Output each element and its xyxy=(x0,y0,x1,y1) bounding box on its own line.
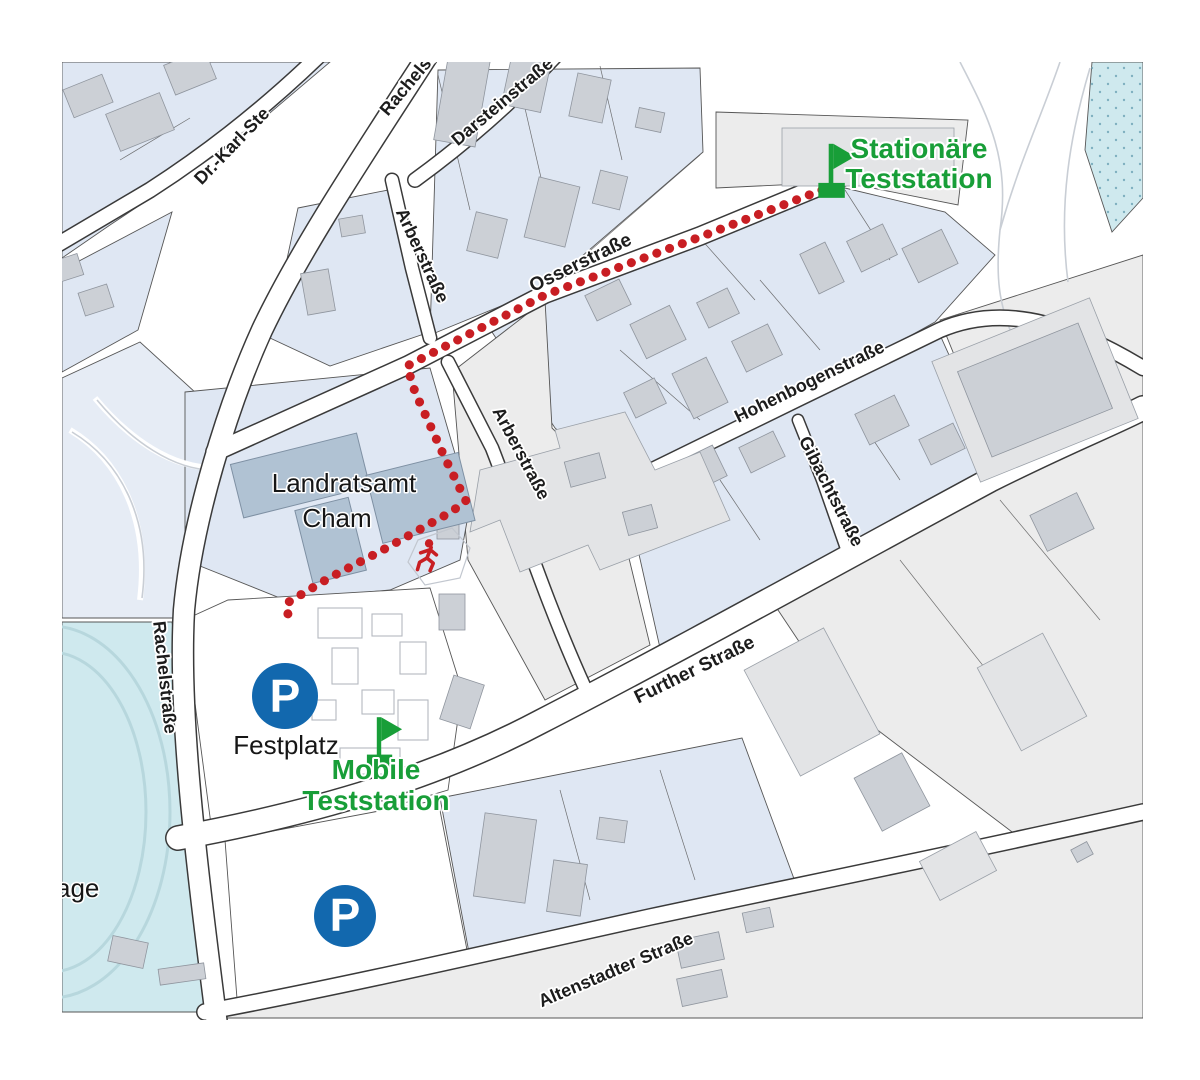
mobile-teststation-label-line1: Mobile xyxy=(332,754,421,785)
street-label-rachelstrasse-top: Rachelst xyxy=(376,49,440,119)
parking-icon-south: P xyxy=(314,885,376,947)
landratsamt-label-line2: Cham xyxy=(302,503,371,533)
map-page: Dr.-Karl-Ste Rachelst Darsteinstraße Arb… xyxy=(0,0,1200,1080)
partial-label-bottom-left: age xyxy=(56,873,99,903)
mobile-teststation-label-line2: Teststation xyxy=(302,785,449,816)
parking-icon-festplatz: P xyxy=(252,663,318,729)
stationary-teststation-label-line2: Teststation xyxy=(845,163,992,194)
map-canvas: Dr.-Karl-Ste Rachelst Darsteinstraße Arb… xyxy=(0,0,1200,1080)
landratsamt-label-line1: Landratsamt xyxy=(272,468,417,498)
parking-letter: P xyxy=(270,670,301,722)
stationary-teststation-label-line1: Stationäre xyxy=(851,133,988,164)
parking-letter: P xyxy=(330,889,361,941)
festplatz-label: Festplatz xyxy=(233,730,339,760)
